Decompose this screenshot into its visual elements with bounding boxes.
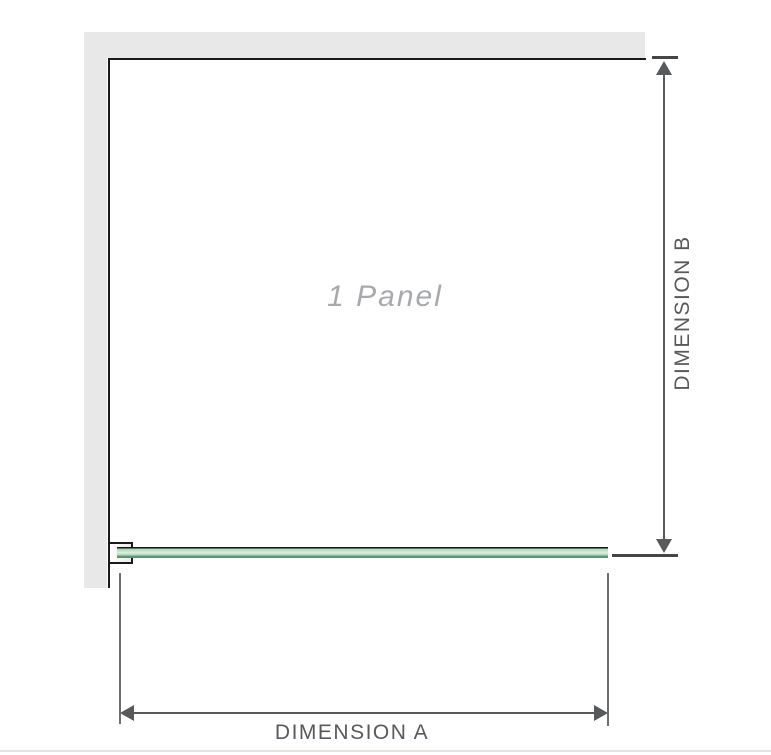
- dimension-b-label: DIMENSION B: [671, 235, 695, 390]
- panel-edge-left: [108, 58, 110, 588]
- panel-label: 1 Panel: [327, 280, 443, 314]
- dimension-b-line: [663, 63, 665, 541]
- dimension-a-line: [123, 712, 605, 714]
- arrow-left-icon: [120, 705, 134, 721]
- wall-top-band: [84, 32, 645, 58]
- panel-dimension-diagram: 1 Panel DIMENSION B DIMENSION A: [0, 0, 771, 755]
- extension-line-right: [607, 573, 609, 726]
- dimension-b-tick-top: [652, 56, 678, 59]
- arrow-right-icon: [594, 705, 608, 721]
- arrow-up-icon: [656, 61, 672, 75]
- dimension-a-label: DIMENSION A: [275, 721, 429, 745]
- panel-edge-top: [108, 58, 646, 60]
- extension-line-left: [119, 573, 121, 724]
- glass-panel-bar: [117, 547, 608, 558]
- page-bottom-divider: [0, 750, 771, 752]
- dimension-b-tick-bottom: [612, 554, 678, 557]
- arrow-down-icon: [656, 539, 672, 553]
- wall-left-band: [84, 32, 107, 588]
